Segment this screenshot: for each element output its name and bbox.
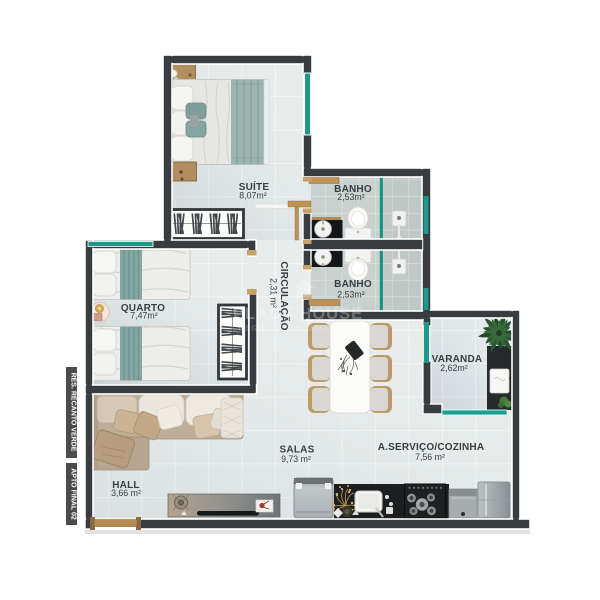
svg-text:7,47m²: 7,47m² (130, 311, 157, 321)
svg-text:3,66 m²: 3,66 m² (111, 488, 141, 498)
svg-text:CIRCULAÇÃO: CIRCULAÇÃO (278, 261, 291, 330)
svg-text:BANHO: BANHO (334, 279, 372, 290)
svg-text:7,56 m²: 7,56 m² (415, 452, 445, 462)
svg-text:9,73 m²: 9,73 m² (281, 454, 311, 464)
svg-text:2,62m²: 2,62m² (440, 363, 467, 373)
svg-text:APTO FINAL 02: APTO FINAL 02 (70, 468, 77, 520)
svg-text:2,31 m²: 2,31 m² (269, 278, 279, 308)
svg-text:2,53m²: 2,53m² (337, 192, 364, 202)
svg-text:8,07m²: 8,07m² (239, 191, 266, 201)
svg-text:PLACE HOUSE: PLACE HOUSE (233, 305, 363, 323)
svg-text:NEGÓCIOS IMOBILIÁRIOS: NEGÓCIOS IMOBILIÁRIOS (239, 324, 358, 333)
svg-text:RES. RECANTO VERDE: RES. RECANTO VERDE (70, 373, 77, 452)
svg-text:2,53m²: 2,53m² (337, 290, 364, 300)
